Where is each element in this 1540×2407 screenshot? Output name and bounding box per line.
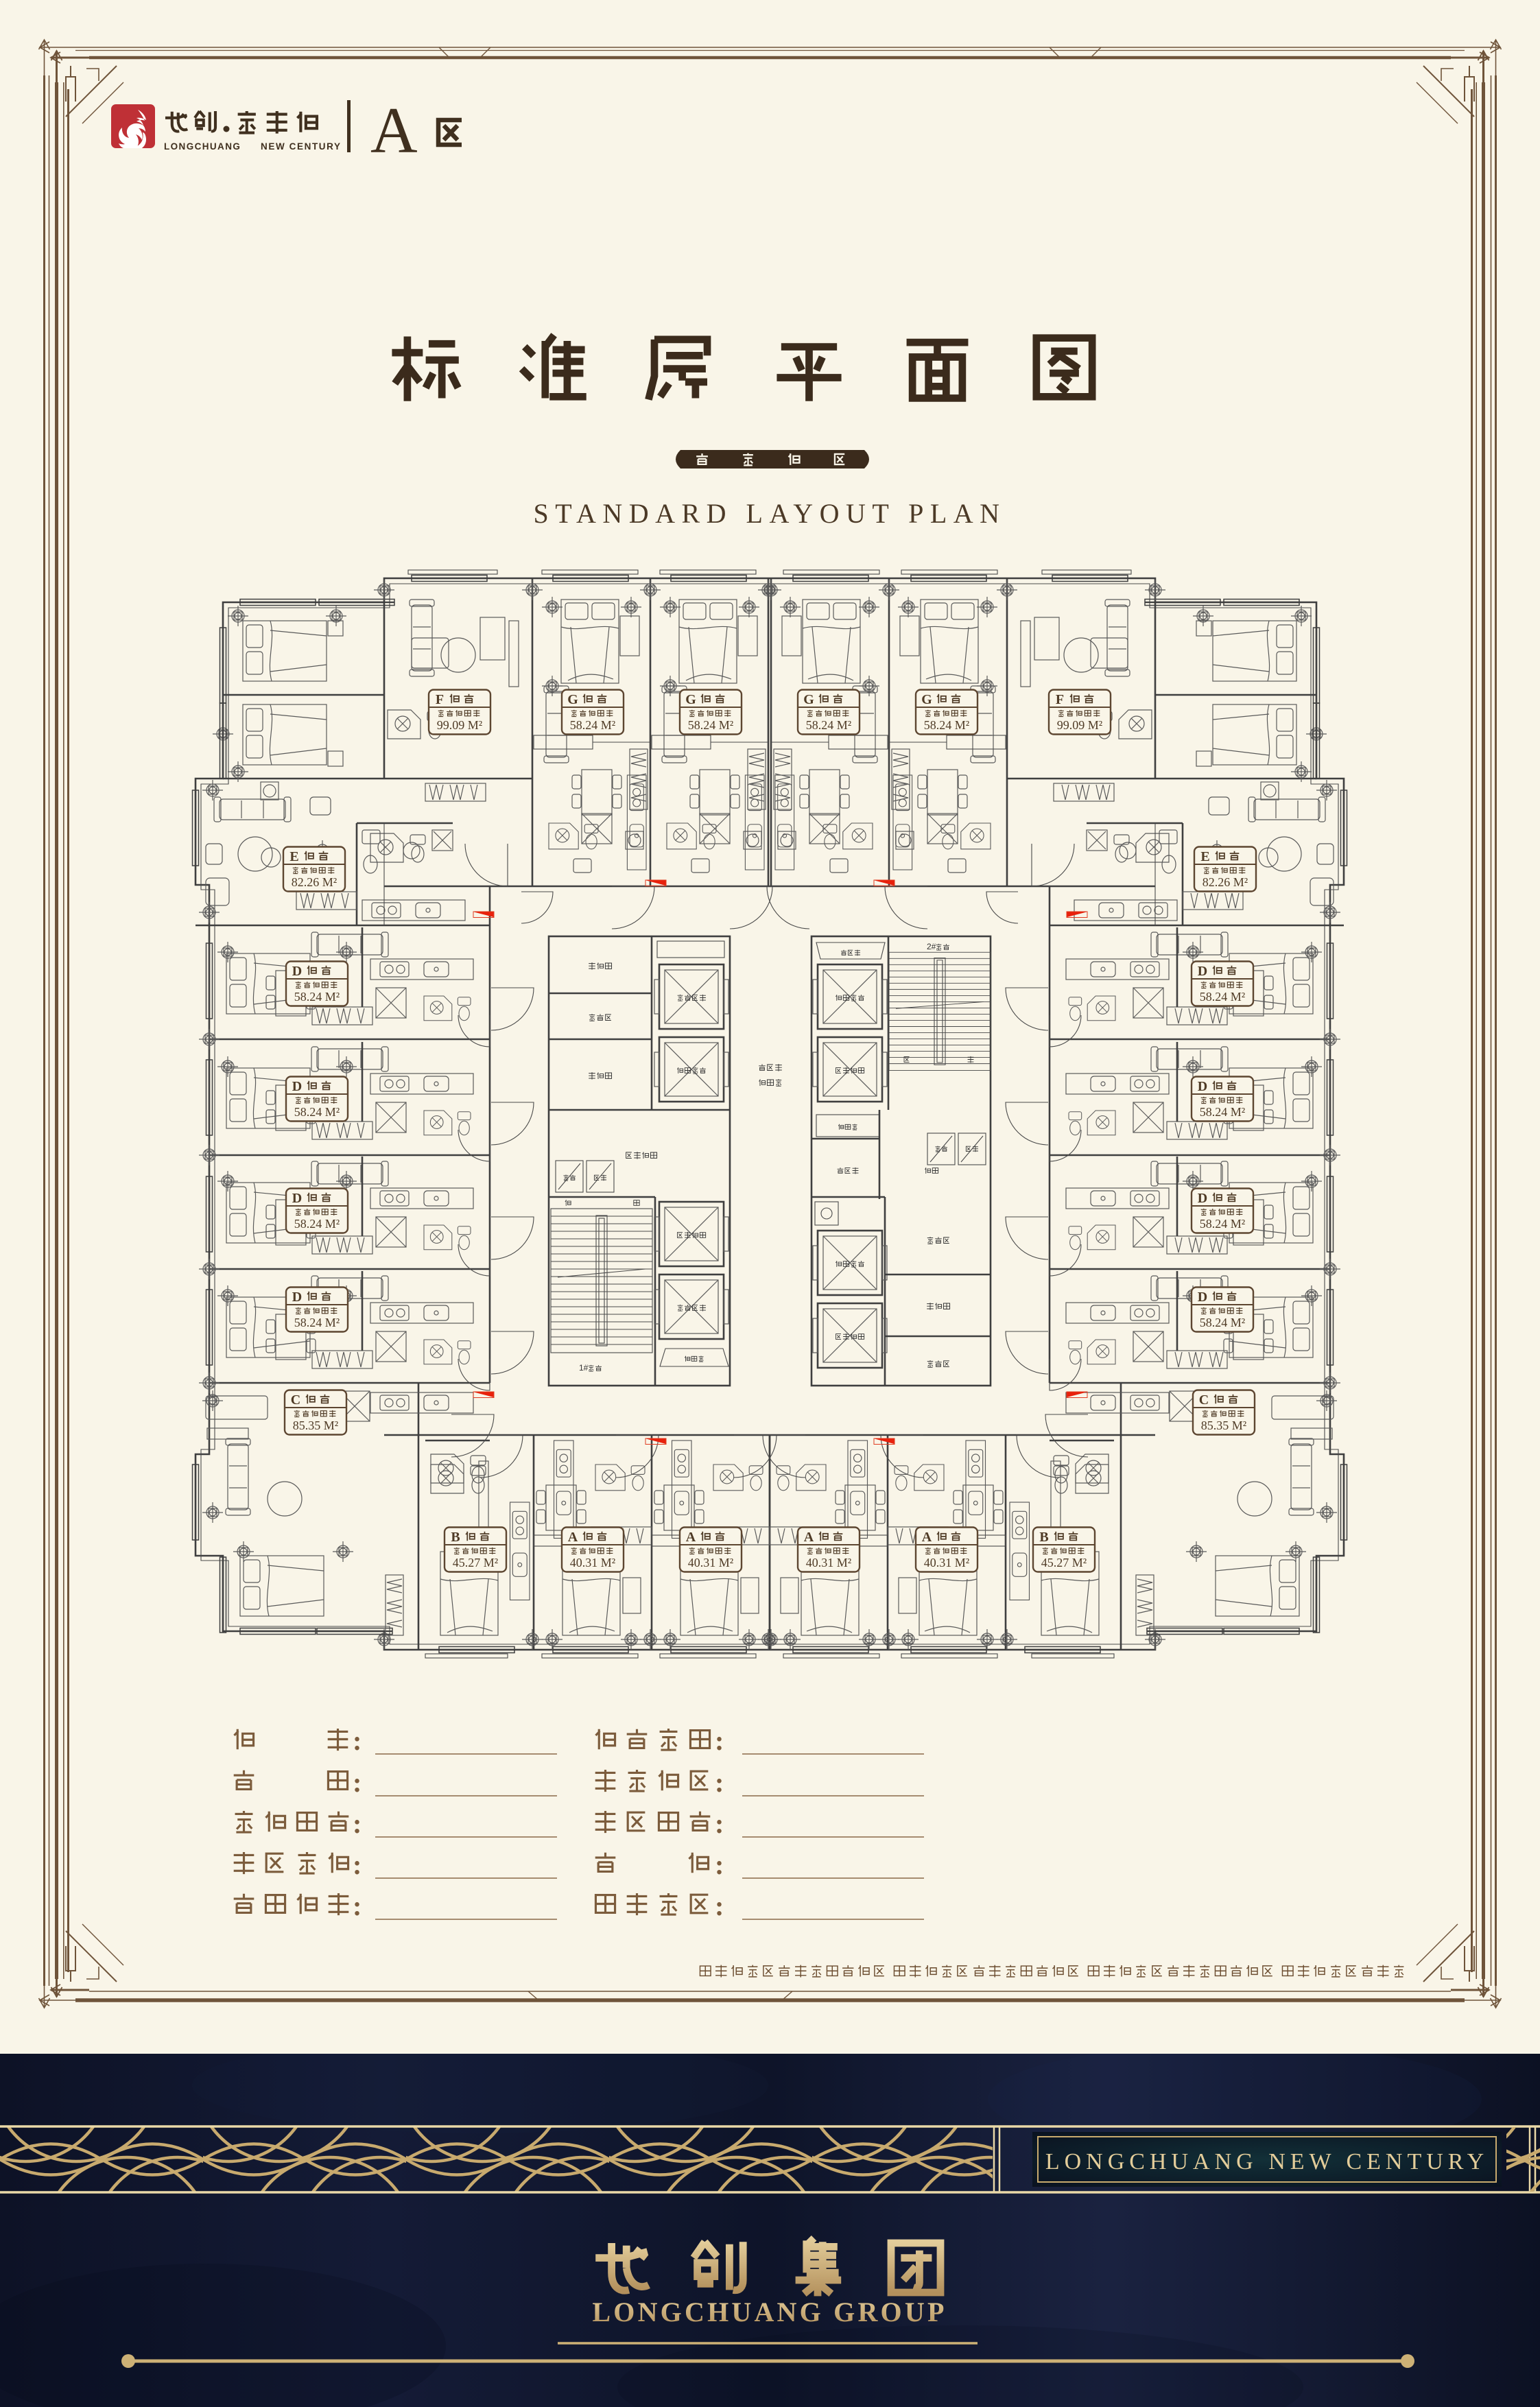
svg-text:STANDARD LAYOUT PLAN: STANDARD LAYOUT PLAN [533, 498, 1006, 529]
svg-text:D: D [292, 1191, 302, 1206]
svg-text:99.09 M²: 99.09 M² [437, 718, 482, 732]
svg-text:A: A [922, 1530, 932, 1545]
svg-text:C: C [1199, 1392, 1209, 1408]
svg-text:40.31 M²: 40.31 M² [570, 1556, 615, 1569]
svg-text:B: B [451, 1530, 460, 1545]
svg-text:LONGCHUANG NEW CENTURY: LONGCHUANG NEW CENTURY [1045, 2149, 1489, 2174]
svg-text:58.24 M²: 58.24 M² [294, 1316, 340, 1329]
svg-text:58.24 M²: 58.24 M² [294, 990, 340, 1004]
svg-text:F: F [1056, 692, 1064, 707]
svg-text:B: B [1039, 1530, 1048, 1545]
svg-text:LONGCHUANG: LONGCHUANG [164, 141, 241, 152]
svg-text:D: D [292, 1290, 302, 1305]
svg-text:F: F [436, 692, 444, 707]
svg-text::: : [715, 1849, 724, 1880]
svg-text:58.24 M²: 58.24 M² [1200, 990, 1245, 1004]
svg-text::: : [715, 1890, 724, 1921]
svg-text:A: A [686, 1530, 696, 1545]
svg-text:58.24 M²: 58.24 M² [294, 1105, 340, 1119]
svg-text:1#: 1# [579, 1363, 589, 1373]
svg-text::: : [715, 1808, 724, 1839]
svg-text:45.27 M²: 45.27 M² [453, 1556, 498, 1569]
svg-text:G: G [567, 692, 578, 707]
svg-text:82.26 M²: 82.26 M² [1203, 875, 1248, 889]
svg-text:D: D [1198, 964, 1207, 979]
svg-text:E: E [289, 849, 298, 864]
svg-text:58.24 M²: 58.24 M² [924, 718, 969, 732]
svg-text::: : [353, 1890, 362, 1921]
svg-text:58.24 M²: 58.24 M² [688, 718, 733, 732]
svg-text:85.35 M²: 85.35 M² [1201, 1419, 1246, 1432]
svg-text:D: D [292, 1079, 302, 1094]
svg-text:G: G [685, 692, 696, 707]
svg-text::: : [715, 1767, 724, 1798]
svg-text:D: D [1198, 1079, 1207, 1094]
svg-text:G: G [921, 692, 932, 707]
svg-text:58.24 M²: 58.24 M² [806, 718, 851, 732]
svg-text:A: A [370, 94, 418, 167]
svg-text:D: D [1198, 1191, 1207, 1206]
svg-text::: : [353, 1767, 362, 1798]
svg-text:58.24 M²: 58.24 M² [1200, 1316, 1245, 1329]
svg-text::: : [715, 1725, 724, 1756]
svg-text:2#: 2# [927, 942, 936, 951]
svg-text:LONGCHUANG GROUP: LONGCHUANG GROUP [592, 2297, 947, 2327]
svg-text:58.24 M²: 58.24 M² [570, 718, 615, 732]
svg-text::: : [353, 1808, 362, 1839]
svg-text:G: G [803, 692, 814, 707]
svg-text:40.31 M²: 40.31 M² [924, 1556, 969, 1569]
svg-text:58.24 M²: 58.24 M² [294, 1217, 340, 1231]
svg-text:D: D [292, 964, 302, 979]
svg-text::: : [353, 1725, 362, 1756]
svg-text:E: E [1200, 849, 1209, 864]
svg-text:58.24 M²: 58.24 M² [1200, 1105, 1245, 1119]
svg-text:40.31 M²: 40.31 M² [688, 1556, 733, 1569]
svg-text:45.27 M²: 45.27 M² [1041, 1556, 1087, 1569]
svg-text:NEW CENTURY: NEW CENTURY [261, 141, 342, 152]
svg-text:A: A [568, 1530, 578, 1545]
svg-text:99.09 M²: 99.09 M² [1057, 718, 1102, 732]
svg-text:85.35 M²: 85.35 M² [293, 1419, 338, 1432]
svg-text:A: A [804, 1530, 814, 1545]
svg-text:D: D [1198, 1290, 1207, 1305]
svg-text::: : [353, 1849, 362, 1880]
svg-text:58.24 M²: 58.24 M² [1200, 1217, 1245, 1231]
svg-text:C: C [291, 1392, 300, 1408]
svg-text:40.31 M²: 40.31 M² [806, 1556, 851, 1569]
svg-text:82.26 M²: 82.26 M² [292, 875, 337, 889]
